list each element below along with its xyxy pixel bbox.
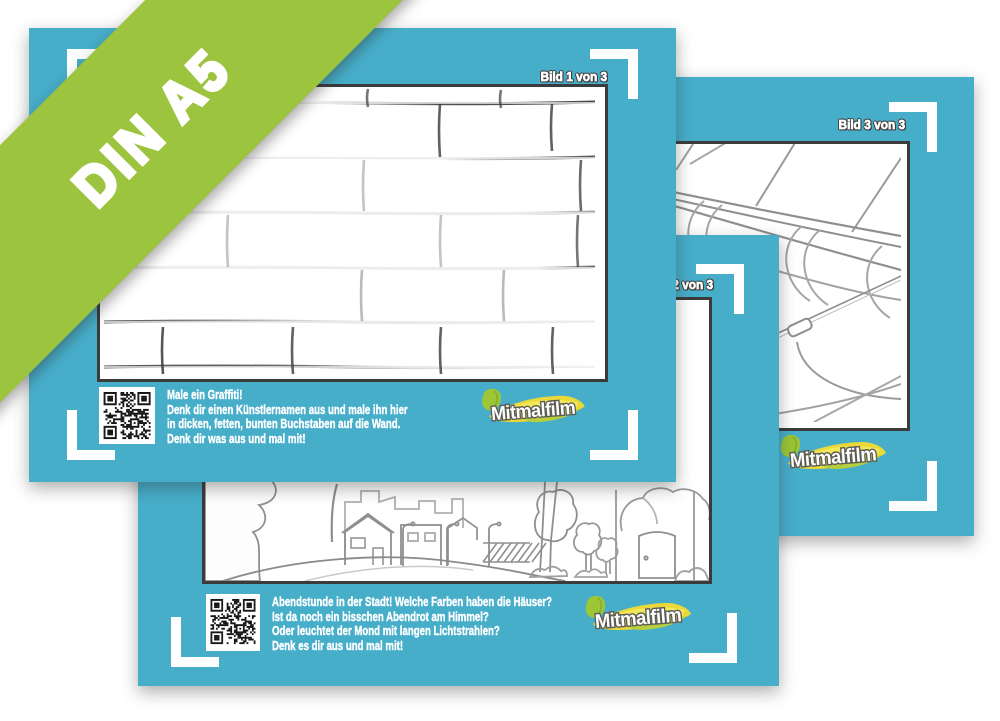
- svg-text:Mitmalfilm: Mitmalfilm: [594, 605, 682, 633]
- svg-text:Mitmalfilm: Mitmalfilm: [789, 444, 877, 472]
- svg-text:Mitmalfilm: Mitmalfilm: [490, 396, 576, 424]
